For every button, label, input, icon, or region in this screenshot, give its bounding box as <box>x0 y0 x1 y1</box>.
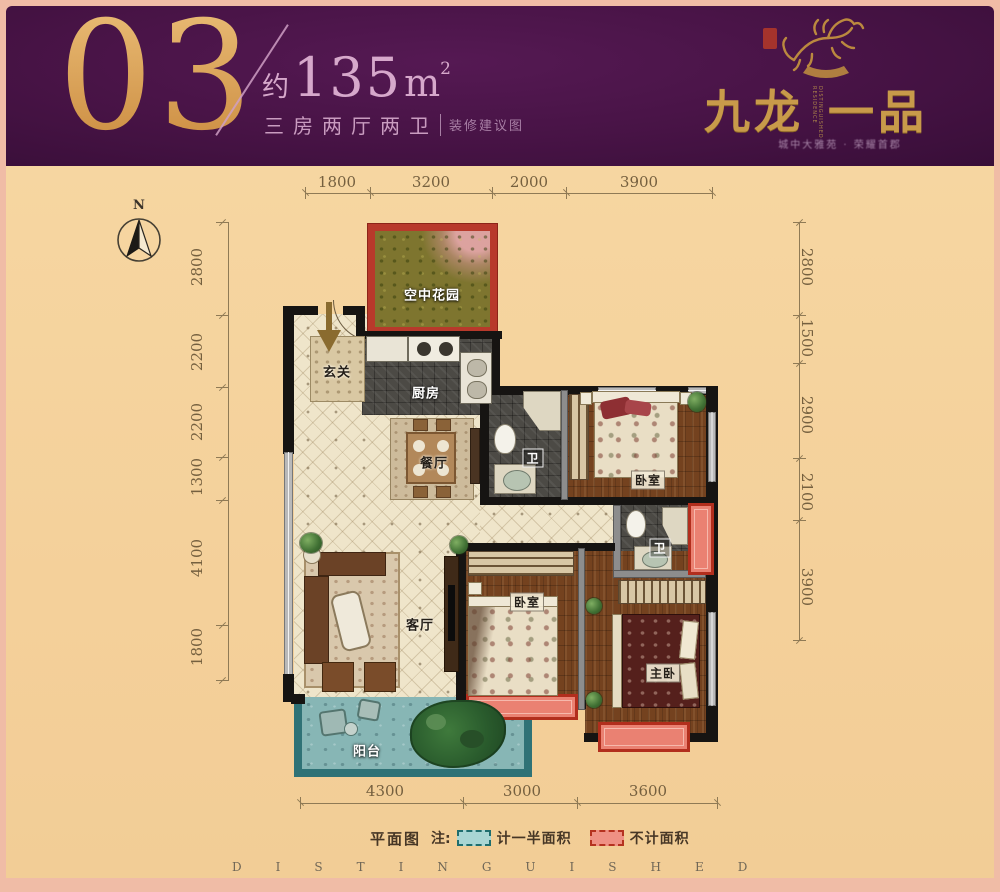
wall-corridor-bottom <box>455 543 615 551</box>
dim-tick <box>793 640 806 641</box>
living-plant2 <box>450 536 468 554</box>
page-frame: 03 约 135 m 2 三房两厅两卫 装修建议图 九龙 DISTINGUISH… <box>0 0 1000 892</box>
sofa-top <box>318 552 386 576</box>
dim-tick <box>305 187 306 199</box>
north-compass: N <box>110 198 168 268</box>
area-unit: m <box>404 61 440 105</box>
wall-bathroom1-bedroom1 <box>561 390 568 500</box>
layout-divider <box>440 114 441 136</box>
armchair <box>322 662 354 692</box>
window-left <box>284 452 293 676</box>
area-superscript: 2 <box>440 59 451 79</box>
legend-half-area-swatch <box>457 830 491 846</box>
bedroom1-bed <box>594 402 678 478</box>
room-label-bath1: 卫 <box>522 449 543 468</box>
bedroom1-nightstand <box>580 392 592 405</box>
area-value: 135 <box>293 46 402 109</box>
seal-stamp-icon <box>763 28 777 49</box>
dim-chain-top <box>305 193 712 194</box>
bathroom1-toilet <box>494 424 516 454</box>
entry-arrow-icon <box>316 300 342 354</box>
dim-label-top: 1800 <box>318 173 356 191</box>
dim-tick <box>793 315 806 316</box>
sofa-left <box>304 576 329 664</box>
room-label-master: 主卧 <box>646 664 680 683</box>
bay-window-red-right <box>688 503 714 575</box>
dim-tick <box>717 797 718 809</box>
unit-number: 03 <box>58 0 257 164</box>
balcony-corner-stub-left <box>291 694 305 704</box>
corridor-floor <box>480 500 623 545</box>
kitchen-stove <box>408 336 460 362</box>
dim-tick <box>300 797 301 809</box>
room-label-dining: 餐厅 <box>420 453 448 472</box>
qilin-beast-icon <box>776 8 876 82</box>
room-label-bath2: 卫 <box>649 539 670 558</box>
dim-label-left: 1300 <box>188 458 206 496</box>
wall-kitchen-right-jog <box>492 331 500 393</box>
dim-tick <box>216 457 229 458</box>
kitchen-counter <box>366 336 408 362</box>
bedroom2-bed <box>468 606 558 696</box>
dim-label-right: 1500 <box>798 319 816 357</box>
dim-tick <box>463 797 464 809</box>
dim-label-top: 3200 <box>412 173 450 191</box>
compass-icon <box>110 213 168 267</box>
dim-tick <box>712 187 713 199</box>
master-wardrobe <box>618 580 706 604</box>
dim-chain-bottom <box>300 803 717 804</box>
balcony-table <box>344 722 358 736</box>
master-bed <box>622 614 700 708</box>
tv-cabinet <box>444 556 459 672</box>
dim-tick <box>492 187 493 199</box>
brand-tagline: 城中大雅苑 · 荣耀首郡 <box>750 136 930 151</box>
window-right-upper <box>708 412 716 482</box>
wall-left-upper <box>283 306 294 454</box>
room-label-balcony: 阳台 <box>353 741 381 760</box>
dining-chair <box>436 419 451 431</box>
kitchen-sink <box>460 352 492 404</box>
header-banner: 03 约 135 m 2 三房两厅两卫 装修建议图 九龙 DISTINGUISH… <box>6 6 994 166</box>
dining-chair <box>413 419 428 431</box>
dim-label-bottom: 3600 <box>629 782 667 800</box>
dim-label-left: 2800 <box>188 248 206 286</box>
dim-tick <box>793 222 806 223</box>
balcony-wall-bottom <box>294 769 532 777</box>
dining-sideboard <box>470 428 480 484</box>
dim-label-right: 2900 <box>798 396 816 434</box>
bedroom1-plant <box>688 392 706 412</box>
wall-bedroom2-master <box>578 548 585 710</box>
dim-tick <box>793 363 806 364</box>
dim-tick <box>216 680 229 681</box>
room-label-bedroom2: 卧室 <box>510 593 544 612</box>
dim-label-left: 2200 <box>188 403 206 441</box>
area-prefix: 约 <box>262 65 289 104</box>
dim-label-right: 3900 <box>798 568 816 606</box>
layout-type: 三房两厅两卫 <box>264 110 438 139</box>
wall-mid-horizontal <box>480 497 718 505</box>
legend-no-area-label: 不计面积 <box>630 828 690 848</box>
bedroom1-wardrobe <box>569 394 589 480</box>
dim-label-left: 2200 <box>188 333 206 371</box>
dim-chain-left <box>228 222 229 680</box>
room-label-entry: 玄关 <box>323 362 351 381</box>
dim-tick <box>216 315 229 316</box>
armchair <box>364 662 396 692</box>
deco-note: 装修建议图 <box>449 115 524 134</box>
dim-tick <box>216 500 229 501</box>
dim-label-bottom: 3000 <box>503 782 541 800</box>
dim-tick <box>793 458 806 459</box>
dining-chair <box>413 486 428 498</box>
north-label: N <box>133 198 145 213</box>
brand-vertical-text: DISTINGUISHED RESIDENCE <box>809 86 823 138</box>
brand-name-left: 九龙 <box>704 76 804 142</box>
watermark-text: DISTINGUISHED <box>232 860 781 874</box>
master-bench <box>612 614 622 708</box>
dim-tick <box>793 520 806 521</box>
dim-label-right: 2800 <box>798 248 816 286</box>
dim-label-top: 3900 <box>620 173 658 191</box>
balcony-chair2 <box>356 698 381 722</box>
bedroom2-nightstand <box>468 582 482 595</box>
dim-tick <box>216 222 229 223</box>
dim-label-right: 2100 <box>798 473 816 511</box>
layout-line: 三房两厅两卫 装修建议图 <box>264 110 524 139</box>
dim-label-left: 1800 <box>188 628 206 666</box>
area-line: 约 135 m 2 <box>262 46 451 109</box>
window-right-lower <box>708 612 716 706</box>
dim-tick <box>216 625 229 626</box>
wall-entry-top-a <box>283 306 318 315</box>
dim-tick <box>566 187 567 199</box>
wall-bathroom2-left <box>613 505 621 578</box>
bathroom2-toilet <box>626 510 646 538</box>
dim-tick <box>370 187 371 199</box>
balcony-wall-left <box>294 700 302 777</box>
brand-name-right: 一品 <box>828 76 928 142</box>
dining-chair <box>436 486 451 498</box>
dim-tick <box>216 387 229 388</box>
legend-half-area-label: 计一半面积 <box>497 828 572 848</box>
sky-garden <box>368 224 497 334</box>
room-label-living: 客厅 <box>406 615 434 634</box>
dim-label-left: 4100 <box>188 539 206 577</box>
room-label-bedroom1: 卧室 <box>631 471 665 490</box>
bay-window-red-master <box>598 722 690 752</box>
legend-title: 平面图 <box>370 828 421 849</box>
room-label-kitchen: 厨房 <box>412 383 440 402</box>
bathroom1-sink <box>494 464 536 494</box>
dim-tick <box>577 797 578 809</box>
legend-note-label: 注: <box>431 828 451 848</box>
dim-label-bottom: 4300 <box>366 782 404 800</box>
bedroom2-wardrobe <box>468 551 574 576</box>
master-plant <box>586 598 602 614</box>
living-plant <box>300 533 322 553</box>
room-label-sky-garden: 空中花园 <box>404 285 460 304</box>
legend-no-area-swatch <box>590 830 624 846</box>
master-plant2 <box>586 692 602 708</box>
dim-label-top: 2000 <box>510 173 548 191</box>
plan-legend: 平面图 注: 计一半面积 不计面积 <box>370 828 690 848</box>
